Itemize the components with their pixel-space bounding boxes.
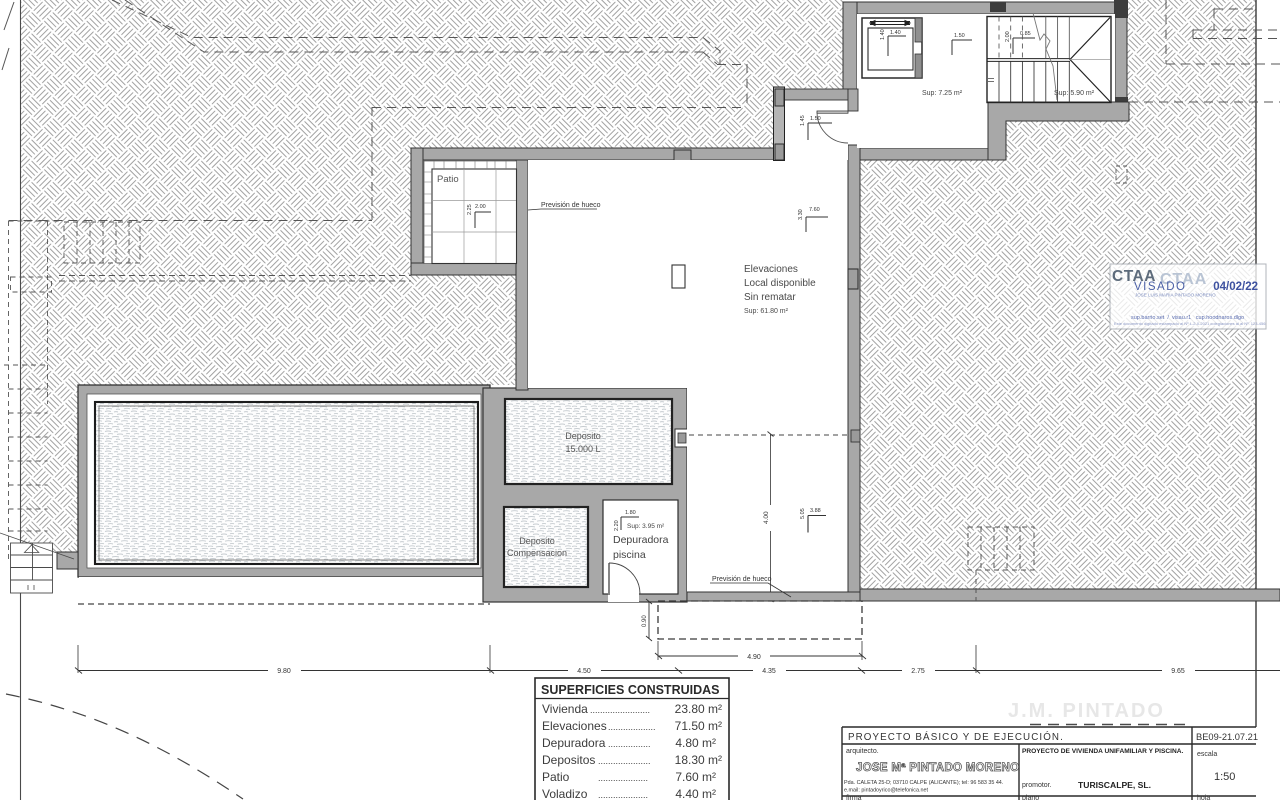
svg-text:....................: .................... bbox=[598, 773, 648, 783]
svg-text:4.40 m²: 4.40 m² bbox=[675, 787, 716, 800]
svg-text:JOSE Mª PINTADO MORENO: JOSE Mª PINTADO MORENO bbox=[856, 762, 1019, 774]
svg-text:4.00: 4.00 bbox=[763, 511, 770, 524]
svg-text:7.60: 7.60 bbox=[809, 207, 820, 213]
svg-text:...................: ................... bbox=[608, 722, 656, 732]
svg-text:2.25: 2.25 bbox=[467, 204, 473, 215]
svg-text:1:50: 1:50 bbox=[1214, 771, 1235, 783]
svg-text:Compensacion: Compensacion bbox=[507, 548, 567, 558]
svg-text:1.50: 1.50 bbox=[810, 116, 821, 122]
svg-text:Voladizo: Voladizo bbox=[542, 787, 588, 800]
svg-text:Deposito: Deposito bbox=[519, 536, 555, 546]
svg-text:3.30: 3.30 bbox=[798, 209, 804, 220]
svg-text:piscina: piscina bbox=[613, 549, 646, 561]
svg-text:1.50: 1.50 bbox=[954, 33, 965, 39]
svg-text:1.45: 1.45 bbox=[800, 115, 806, 126]
svg-text:4.80 m²: 4.80 m² bbox=[675, 736, 716, 750]
svg-text:hoja: hoja bbox=[1197, 795, 1210, 800]
svg-text:PROYECTO BÁSICO Y DE EJECUCIÓN: PROYECTO BÁSICO Y DE EJECUCIÓN. bbox=[848, 732, 1064, 743]
svg-text:2.20: 2.20 bbox=[614, 520, 620, 531]
svg-text:J.M. PINTADO: J.M. PINTADO bbox=[1008, 700, 1165, 722]
svg-text:04/02/22: 04/02/22 bbox=[1213, 281, 1258, 293]
svg-text:71.50 m²: 71.50 m² bbox=[675, 719, 722, 733]
svg-text:Elevaciones: Elevaciones bbox=[744, 264, 798, 275]
svg-text:Sup: 5.90 m²: Sup: 5.90 m² bbox=[1054, 90, 1095, 97]
svg-text:4.35: 4.35 bbox=[762, 668, 776, 675]
svg-text:Sup: 61.80 m²: Sup: 61.80 m² bbox=[744, 308, 789, 315]
svg-text:Previsión de hueco: Previsión de hueco bbox=[541, 202, 601, 209]
svg-text:18.30 m²: 18.30 m² bbox=[675, 753, 722, 767]
svg-text:plano: plano bbox=[1022, 795, 1039, 800]
svg-text:2.75: 2.75 bbox=[911, 668, 925, 675]
svg-text:.....................: ..................... bbox=[598, 756, 651, 766]
svg-text:firma: firma bbox=[846, 795, 862, 800]
svg-text:Pda. CALETA 25-D; 03710 CALPE: Pda. CALETA 25-D; 03710 CALPE (ALICANTE)… bbox=[844, 780, 1003, 786]
svg-text:0.85: 0.85 bbox=[1020, 31, 1031, 37]
svg-text:Previsión de hueco: Previsión de hueco bbox=[712, 576, 772, 583]
svg-text:Vivienda: Vivienda bbox=[542, 702, 588, 716]
svg-text:1.40: 1.40 bbox=[890, 30, 901, 36]
svg-text:TURISCALPE, SL.: TURISCALPE, SL. bbox=[1078, 780, 1151, 790]
svg-text:promotor.: promotor. bbox=[1022, 782, 1052, 789]
svg-text:5.05: 5.05 bbox=[800, 508, 806, 519]
svg-text:e.mail: pintadoyrico@telefonic: e.mail: pintadoyrico@telefonica.net bbox=[844, 788, 928, 794]
svg-text:0.90: 0.90 bbox=[642, 615, 648, 627]
svg-text:23.80 m²: 23.80 m² bbox=[675, 702, 722, 716]
svg-text:Patio: Patio bbox=[542, 770, 570, 784]
svg-text:9.65: 9.65 bbox=[1171, 668, 1185, 675]
svg-text:JOSE LUIS MARIA PINTADO MORENO: JOSE LUIS MARIA PINTADO MORENO bbox=[1135, 293, 1216, 298]
svg-text:PROYECTO DE VIVIENDA UNIFAMILI: PROYECTO DE VIVIENDA UNIFAMILIAR Y PISCI… bbox=[1022, 748, 1183, 755]
svg-text:Sup: 7.25 m²: Sup: 7.25 m² bbox=[922, 90, 963, 97]
svg-text:Depuradora: Depuradora bbox=[613, 534, 669, 546]
svg-text:Sin rematar: Sin rematar bbox=[744, 292, 796, 303]
svg-text:Patio: Patio bbox=[437, 174, 459, 185]
svg-text:.................: ................. bbox=[608, 739, 651, 749]
svg-text:4.50: 4.50 bbox=[577, 668, 591, 675]
svg-text:VISADO: VISADO bbox=[1134, 281, 1186, 293]
svg-text:Local disponible: Local disponible bbox=[744, 278, 816, 289]
svg-text:7.60 m²: 7.60 m² bbox=[675, 770, 716, 784]
svg-text:Depositos: Depositos bbox=[542, 753, 595, 767]
svg-text:Este documento digitado estamp: Este documento digitado estampado al Nº … bbox=[1114, 321, 1266, 326]
svg-text:2.00: 2.00 bbox=[1005, 31, 1011, 42]
svg-text:15.000 L: 15.000 L bbox=[565, 444, 600, 454]
svg-text:1.80: 1.80 bbox=[625, 510, 636, 516]
svg-text:....................: .................... bbox=[598, 790, 648, 800]
svg-text:1.40: 1.40 bbox=[880, 29, 886, 40]
svg-text:Deposito: Deposito bbox=[565, 431, 601, 441]
svg-text:Depuradora: Depuradora bbox=[542, 736, 606, 750]
svg-text:4.90: 4.90 bbox=[747, 654, 761, 661]
svg-text:BE09-21.07.21: BE09-21.07.21 bbox=[1196, 732, 1258, 742]
svg-text:3.88: 3.88 bbox=[810, 508, 821, 514]
svg-text:........................: ........................ bbox=[590, 705, 650, 715]
svg-text:escala: escala bbox=[1197, 751, 1217, 758]
svg-text:9.80: 9.80 bbox=[277, 668, 291, 675]
svg-text:2.00: 2.00 bbox=[475, 204, 486, 210]
svg-text:Sup: 3.95 m²: Sup: 3.95 m² bbox=[627, 523, 665, 530]
svg-text:arquitecto.: arquitecto. bbox=[846, 748, 879, 755]
svg-text:SUPERFICIES CONSTRUIDAS: SUPERFICIES CONSTRUIDAS bbox=[541, 683, 720, 697]
svg-text:Elevaciones: Elevaciones bbox=[542, 719, 607, 733]
